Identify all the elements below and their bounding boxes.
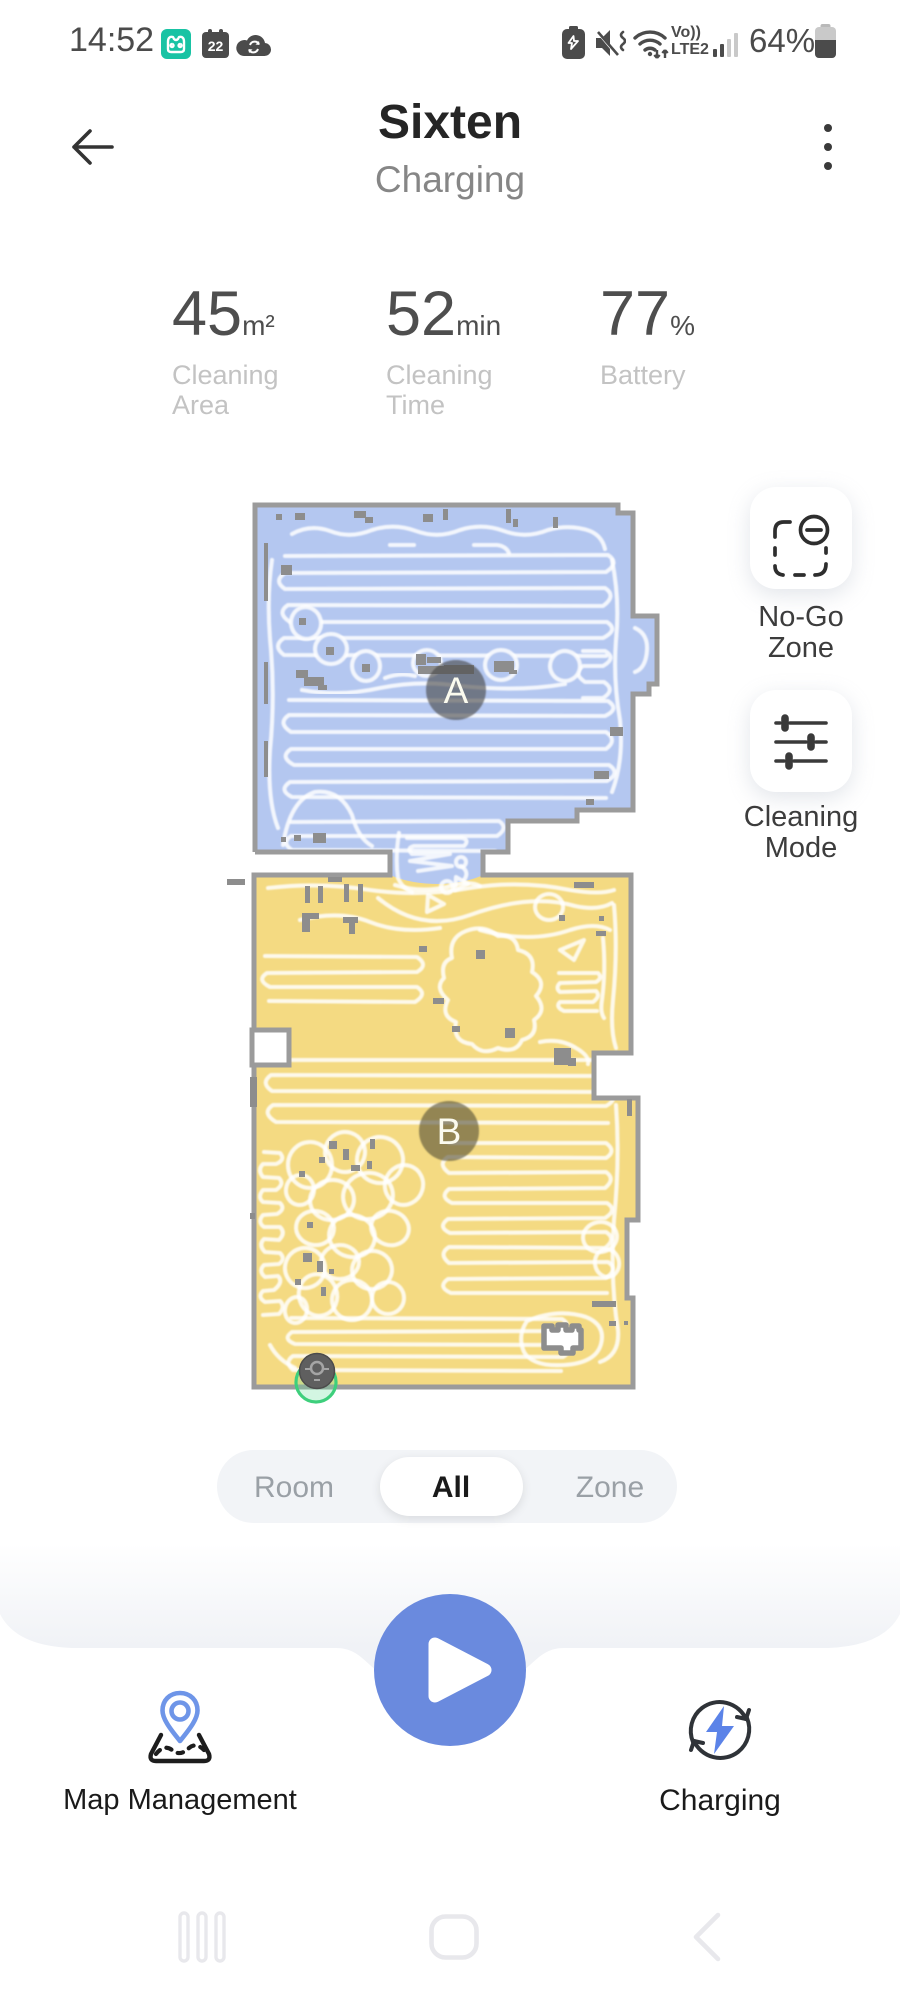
svg-text:B: B xyxy=(437,1111,462,1152)
svg-text:A: A xyxy=(444,670,469,711)
svg-text:22: 22 xyxy=(208,38,224,54)
